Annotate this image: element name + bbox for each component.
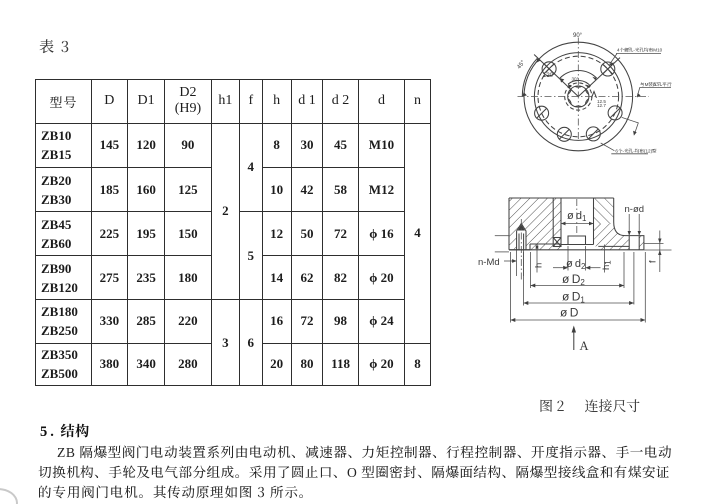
svg-text:n-Md: n-Md [478,257,500,268]
svg-text:ø D2: ø D2 [562,272,585,287]
svg-text:4个螺孔-光孔均布M10: 4个螺孔-光孔均布M10 [617,47,663,53]
svg-text:n-ød: n-ød [625,204,645,215]
svg-text:45°: 45° [516,59,527,70]
svg-text:90°: 90° [573,33,583,39]
svg-text:f: f [648,260,658,263]
svg-text:h1: h1 [601,260,613,270]
svg-text:ø d1: ø d1 [567,210,587,223]
svg-text:h: h [534,263,545,268]
svg-text:6个-光孔-均布(12)型: 6个-光孔-均布(12)型 [615,148,657,154]
svg-text:与M装配孔平行: 与M装配孔平行 [640,81,672,87]
svg-text:A: A [580,339,589,353]
svg-text:30°: 30° [572,77,579,82]
svg-text:12.7: 12.7 [597,103,606,108]
svg-text:120°: 120° [543,73,556,79]
svg-text:ø D1: ø D1 [562,290,585,305]
svg-text:ø d2: ø d2 [566,258,586,271]
svg-text:ø D: ø D [560,306,579,320]
